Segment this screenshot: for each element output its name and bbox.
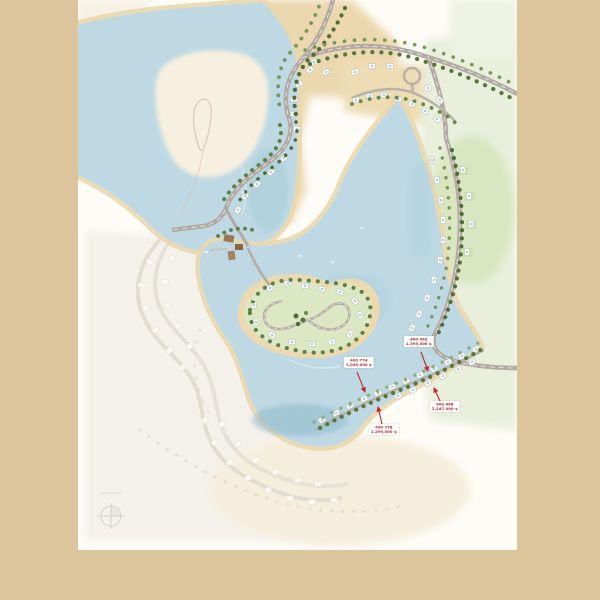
unit-price: 1,049,000 $ [346, 362, 372, 367]
unit-price: 1,595,000 $ [406, 341, 432, 346]
price-label[interactable]: 400 778 1,299,000 $ [369, 424, 399, 435]
site-plan-map [0, 0, 600, 600]
pier [210, 249, 227, 250]
price-label[interactable]: 400 468 2,247,000 $ [430, 401, 460, 412]
master-plan-canvas: 400 463 1,595,000 $ 400 774 1,049,000 $ … [0, 0, 600, 600]
unit-price: 2,247,000 $ [432, 406, 458, 411]
unit-price: 1,299,000 $ [371, 429, 397, 434]
price-label[interactable]: 400 463 1,595,000 $ [404, 336, 434, 347]
price-label[interactable]: 400 774 1,049,000 $ [344, 357, 374, 368]
